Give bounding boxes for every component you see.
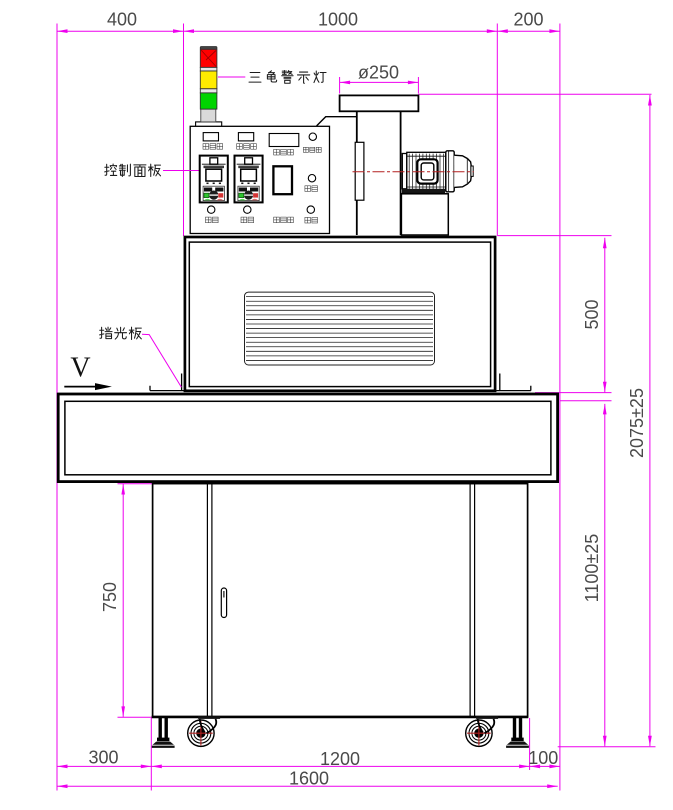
svg-text:2075±25: 2075±25: [627, 388, 647, 458]
svg-text:1100±25: 1100±25: [582, 534, 602, 603]
svg-text:100: 100: [528, 748, 558, 768]
svg-text:500: 500: [582, 299, 602, 329]
svg-text:V: V: [70, 353, 90, 384]
svg-text:1200: 1200: [320, 749, 360, 769]
svg-text:400: 400: [107, 10, 137, 30]
svg-text:1600: 1600: [289, 768, 329, 788]
svg-text:ø250: ø250: [358, 63, 399, 83]
svg-text:750: 750: [100, 582, 120, 612]
svg-text:300: 300: [88, 747, 118, 767]
svg-text:1000: 1000: [318, 10, 358, 30]
svg-text:200: 200: [513, 10, 543, 30]
